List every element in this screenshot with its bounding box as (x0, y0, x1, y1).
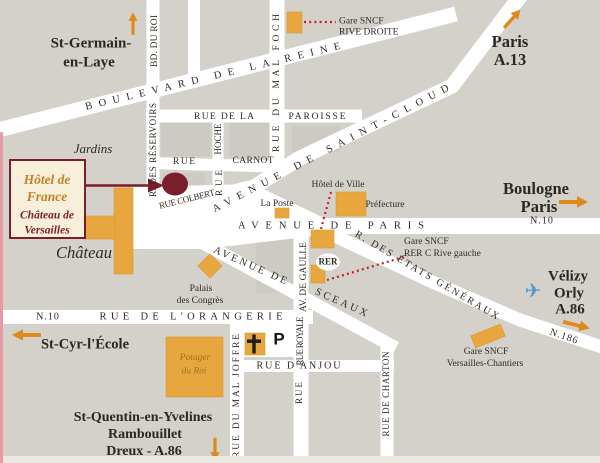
chateau-building-main (114, 188, 133, 274)
label-n10-east: N.10 (530, 215, 554, 226)
label-potager-2: du Roi (181, 367, 206, 377)
label-jardins: Jardins (74, 141, 113, 156)
label-paris-a13-2: A.13 (494, 50, 527, 69)
hotel-card-subtitle-2: Versailles (24, 225, 70, 237)
left-edge-strip (0, 132, 3, 463)
label-st-cyr: St-Cyr-l'École (41, 335, 130, 352)
label-gare-rer-2: RER C Rive gauche (404, 249, 481, 259)
label-gare-rer-1: Gare SNCF (404, 237, 449, 247)
hotel-card-subtitle-1: Château de (20, 210, 74, 222)
la-poste-building (275, 208, 289, 218)
hotel-location-marker (162, 173, 188, 196)
versailles-access-map: ✈ BD. DU ROI R. DES RÉSERVOIRS BOULEVARD… (0, 0, 600, 463)
label-rue-de-la-paroisse-1: RUE DE LA (194, 112, 254, 122)
label-potager-1: Potager (179, 353, 211, 363)
label-paris-a13-1: Paris (492, 32, 529, 51)
label-prefecture: Préfecture (365, 199, 404, 210)
church-cross-icon-bar (247, 340, 261, 343)
hotel-card-name-2: France (26, 189, 68, 204)
label-rer: RER (318, 257, 338, 267)
prefecture-building (336, 192, 366, 216)
label-velizy-1: Vélizy (548, 268, 588, 284)
label-rue-des-reservoirs: R. DES RÉSERVOIRS (148, 103, 158, 197)
hotel-de-ville-building (311, 230, 334, 248)
airport-plane-icon: ✈ (525, 279, 542, 303)
label-rue-hoche-rue: RUE (214, 170, 224, 197)
gare-rive-droite-building (287, 12, 302, 33)
label-palais-des-congres-2: des Congrès (177, 296, 224, 306)
label-rue-de-la-paroisse-2: PAROISSE (289, 112, 346, 122)
label-rue-du-mal-joffre: RUE DU MAL JOFFRE (232, 334, 242, 458)
label-boulogne-1: Boulogne (503, 179, 569, 198)
label-rue-danjou: RUE D'ANJOU (257, 360, 342, 371)
city-block (229, 123, 270, 156)
label-gare-chantiers-2: Versailles-Chantiers (447, 359, 524, 369)
label-st-quentin: St-Quentin-en-Yvelines (74, 410, 213, 425)
label-rue-royale: RUE ROYALE (295, 316, 305, 366)
label-gare-rive-droite-2: RIVE DROITE (339, 28, 399, 38)
label-velizy-2: Orly (554, 285, 584, 301)
label-rue-royale-rue: RUE (294, 382, 304, 405)
label-st-germain-1: St-Germain- (51, 35, 132, 51)
label-bd-du-roi: BD. DU ROI (150, 15, 160, 67)
label-rue-de-charton: RUE DE CHARTON (381, 351, 391, 437)
label-n10-west: N.10 (36, 311, 60, 322)
parking-icon: P (273, 329, 284, 348)
bottom-edge-strip (0, 456, 600, 463)
label-av-de-gaulle: AV. DE GAULLE (299, 242, 309, 312)
hotel-card-name-1: Hôtel de (23, 172, 71, 187)
chateau-building-wing (84, 216, 115, 239)
label-avenue-de-paris: AVENUE DE PARIS (238, 220, 424, 231)
label-hotel-de-ville: Hôtel de Ville (311, 180, 364, 190)
label-rue-carnot-rue: RUE (173, 157, 195, 167)
label-rue-hoche: HOCHE (213, 123, 223, 155)
church-cross-icon (252, 335, 255, 354)
label-st-germain-2: en-Laye (63, 54, 115, 70)
label-la-poste: La Poste (261, 199, 294, 209)
label-chateau: Château (56, 243, 112, 262)
label-gare-chantiers-1: Gare SNCF (464, 347, 509, 357)
label-palais-des-congres-1: Palais (190, 284, 213, 294)
city-block (161, 123, 210, 156)
label-velizy-3: A.86 (555, 301, 585, 317)
label-rue-carnot: CARNOT (233, 156, 274, 166)
label-rambouillet: Rambouillet (108, 427, 182, 442)
label-boulogne-2: Paris (521, 197, 558, 216)
label-gare-rive-droite-1: Gare SNCF (339, 17, 384, 27)
map-canvas: ✈ BD. DU ROI R. DES RÉSERVOIRS BOULEVARD… (0, 0, 600, 463)
hotel-card: Hôtel de France Château de Versailles (10, 160, 85, 238)
